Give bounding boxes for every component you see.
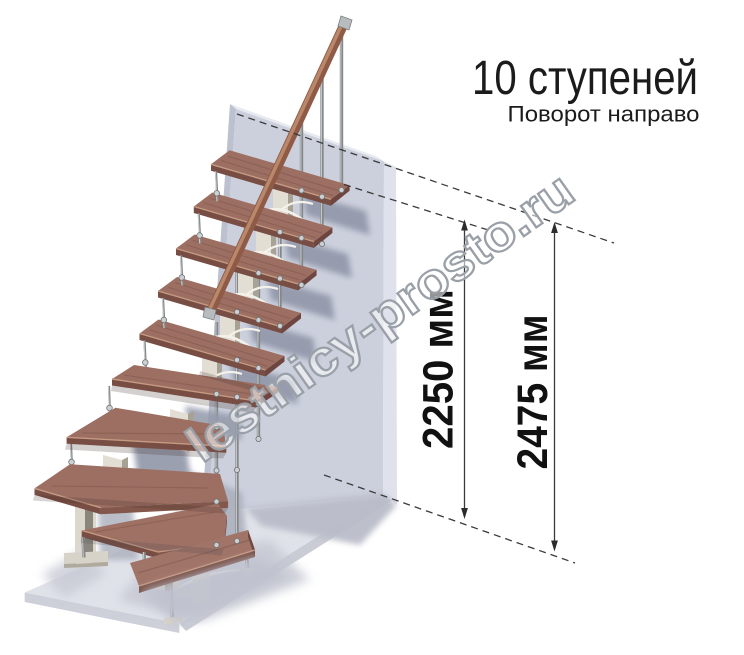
svg-text:10 ступеней: 10 ступеней xyxy=(472,52,698,105)
svg-text:2475 мм: 2475 мм xyxy=(509,315,557,470)
svg-text:Поворот направо: Поворот направо xyxy=(508,102,700,127)
